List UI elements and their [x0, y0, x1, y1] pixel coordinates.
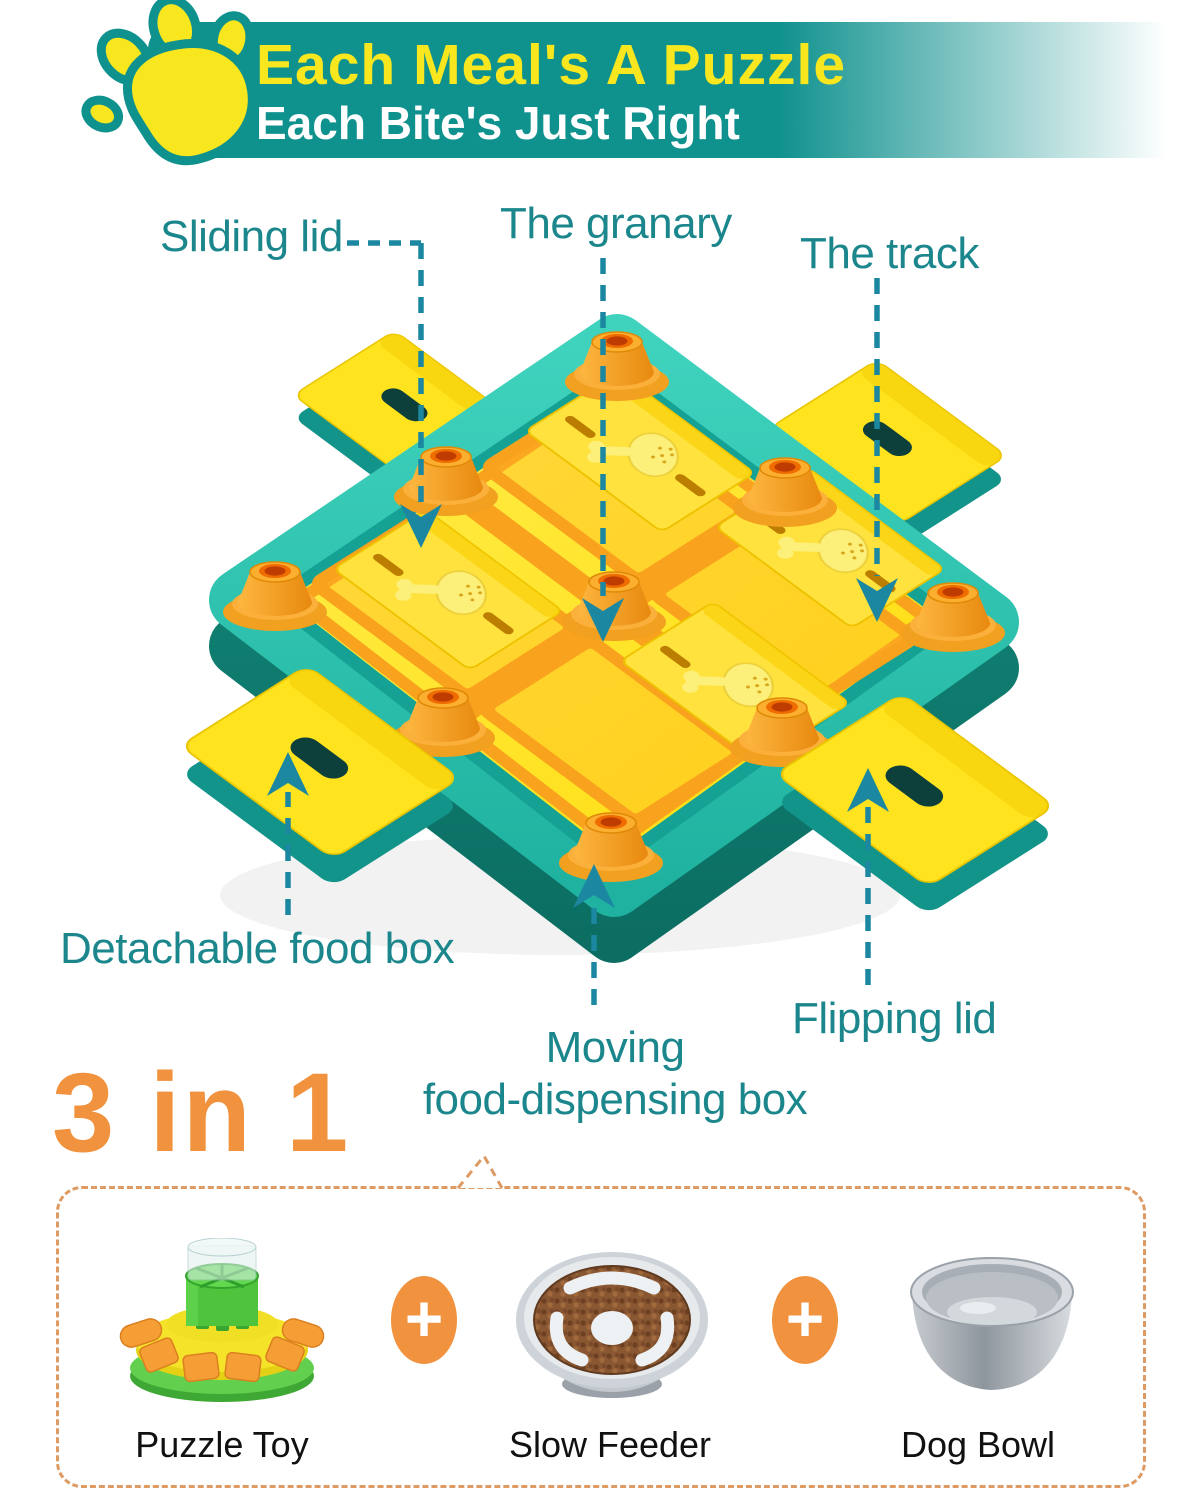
callout-track: The track [800, 229, 979, 279]
detachable-food-box [293, 331, 516, 508]
plus-icon: + [772, 1276, 838, 1364]
callout-moving-line2: food-dispensing box [395, 1074, 835, 1126]
arrowheads [267, 504, 898, 908]
arrow-down-icon [400, 504, 442, 548]
granary-cell [483, 640, 744, 822]
plus-icon: + [391, 1276, 457, 1364]
detachable-food-box [769, 360, 1006, 548]
callout-sliding-lid: Sliding lid [160, 212, 343, 262]
arrow-down-icon [582, 598, 624, 642]
arrow-up-icon [847, 768, 889, 812]
callout-moving-box: Moving food-dispensing box [395, 1022, 835, 1126]
product-infographic-page: Each Meal's A Puzzle Each Bite's Just Ri… [0, 0, 1198, 1500]
three-in-one-headline: 3 in 1 [52, 1048, 350, 1177]
puzzle-tray [240, 345, 988, 932]
callout-moving-line1: Moving [395, 1022, 835, 1074]
slow-feeder-image [502, 1232, 722, 1407]
item-label-dog-bowl: Dog Bowl [828, 1424, 1128, 1466]
track-grid [443, 485, 785, 736]
granary-cell [654, 525, 915, 707]
flipping-lid-box [775, 693, 1054, 914]
header-title: Each Meal's A Puzzle [256, 32, 846, 98]
header-subtitle: Each Bite's Just Right [256, 96, 740, 150]
sliding-lid [715, 468, 944, 628]
granary-cell [315, 515, 576, 697]
granary-cones [223, 332, 1005, 882]
item-label-puzzle-toy: Puzzle Toy [72, 1424, 372, 1466]
callout-detachable-food-box: Detachable food box [60, 924, 454, 974]
arrow-up-icon [267, 752, 309, 796]
dog-bowl-image [882, 1240, 1102, 1410]
item-label-slow-feeder: Slow Feeder [460, 1424, 760, 1466]
puzzle-toy-image [112, 1238, 332, 1408]
callout-flipping-lid: Flipping lid [792, 994, 996, 1044]
callout-granary: The granary [500, 199, 732, 249]
track-frame [298, 388, 930, 845]
detachable-food-box [180, 665, 459, 886]
arrow-up-icon [573, 864, 615, 908]
arrow-down-icon [856, 578, 898, 622]
tray-surface [275, 370, 953, 864]
moving-food-dispensing-box [620, 602, 849, 762]
sliding-lid [333, 510, 562, 670]
sliding-lid [525, 372, 754, 532]
callout-arrows [288, 243, 877, 1005]
combo-box-tail [458, 1156, 502, 1188]
paw-icon [38, 0, 273, 185]
granary-cell [486, 399, 747, 581]
